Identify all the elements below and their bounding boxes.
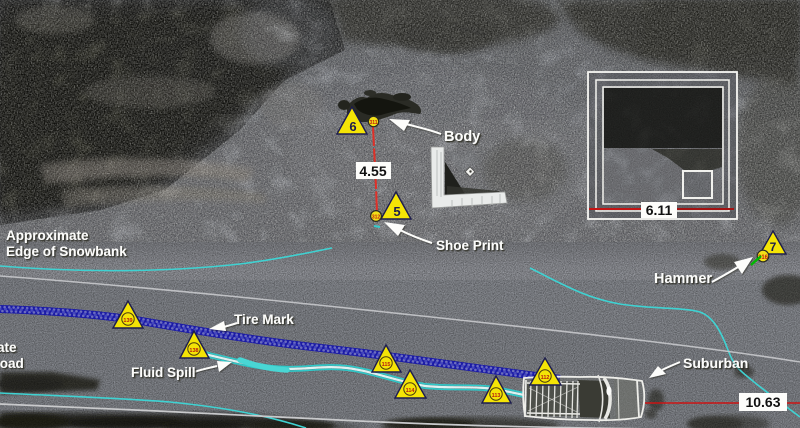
svg-text:Fluid Spill: Fluid Spill xyxy=(131,365,196,380)
svg-text:5: 5 xyxy=(393,204,400,219)
svg-text:Shoe Print: Shoe Print xyxy=(436,238,504,253)
svg-text:Hammer: Hammer xyxy=(654,271,712,287)
svg-text:138: 138 xyxy=(189,348,198,354)
svg-text:114: 114 xyxy=(406,388,416,394)
svg-text:312: 312 xyxy=(372,215,381,221)
svg-text:6.11: 6.11 xyxy=(646,202,673,218)
svg-text:10.63: 10.63 xyxy=(745,394,780,410)
svg-text:112: 112 xyxy=(541,375,550,381)
svg-text:Tire Mark: Tire Mark xyxy=(234,312,294,327)
svg-text:Road: Road xyxy=(0,356,24,371)
svg-text:6: 6 xyxy=(349,119,356,134)
svg-text:Body: Body xyxy=(444,129,480,145)
svg-text:Approximate: Approximate xyxy=(0,340,17,355)
svg-text:Approximate: Approximate xyxy=(6,228,89,243)
svg-text:113: 113 xyxy=(492,393,501,399)
svg-text:311: 311 xyxy=(369,120,377,126)
svg-text:139: 139 xyxy=(123,318,132,324)
svg-text:Edge of Snowbank: Edge of Snowbank xyxy=(6,244,127,259)
svg-text:4.55: 4.55 xyxy=(359,163,386,179)
svg-text:115: 115 xyxy=(382,362,391,368)
svg-text:Suburban: Suburban xyxy=(683,355,748,371)
svg-text:7: 7 xyxy=(770,240,777,254)
